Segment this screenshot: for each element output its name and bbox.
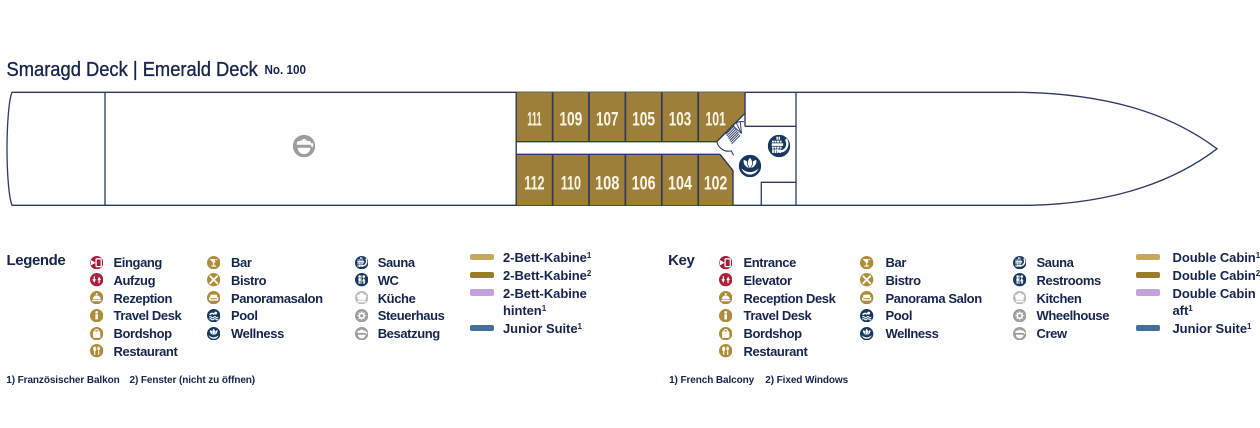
svg-text:108: 108 xyxy=(595,171,620,194)
svg-text:No. 100: No. 100 xyxy=(265,62,307,76)
svg-text:Smaragd Deck | Emerald Deck: Smaragd Deck | Emerald Deck xyxy=(7,58,259,81)
svg-text:104: 104 xyxy=(668,172,692,194)
svg-text:107: 107 xyxy=(596,108,618,130)
svg-text:109: 109 xyxy=(559,108,582,130)
svg-text:111: 111 xyxy=(527,109,542,131)
svg-text:110: 110 xyxy=(561,173,581,194)
svg-text:103: 103 xyxy=(669,108,691,130)
svg-text:112: 112 xyxy=(524,173,544,194)
svg-text:102: 102 xyxy=(704,172,727,194)
svg-text:106: 106 xyxy=(632,172,656,194)
svg-text:105: 105 xyxy=(632,108,655,130)
svg-text:101: 101 xyxy=(705,109,725,131)
